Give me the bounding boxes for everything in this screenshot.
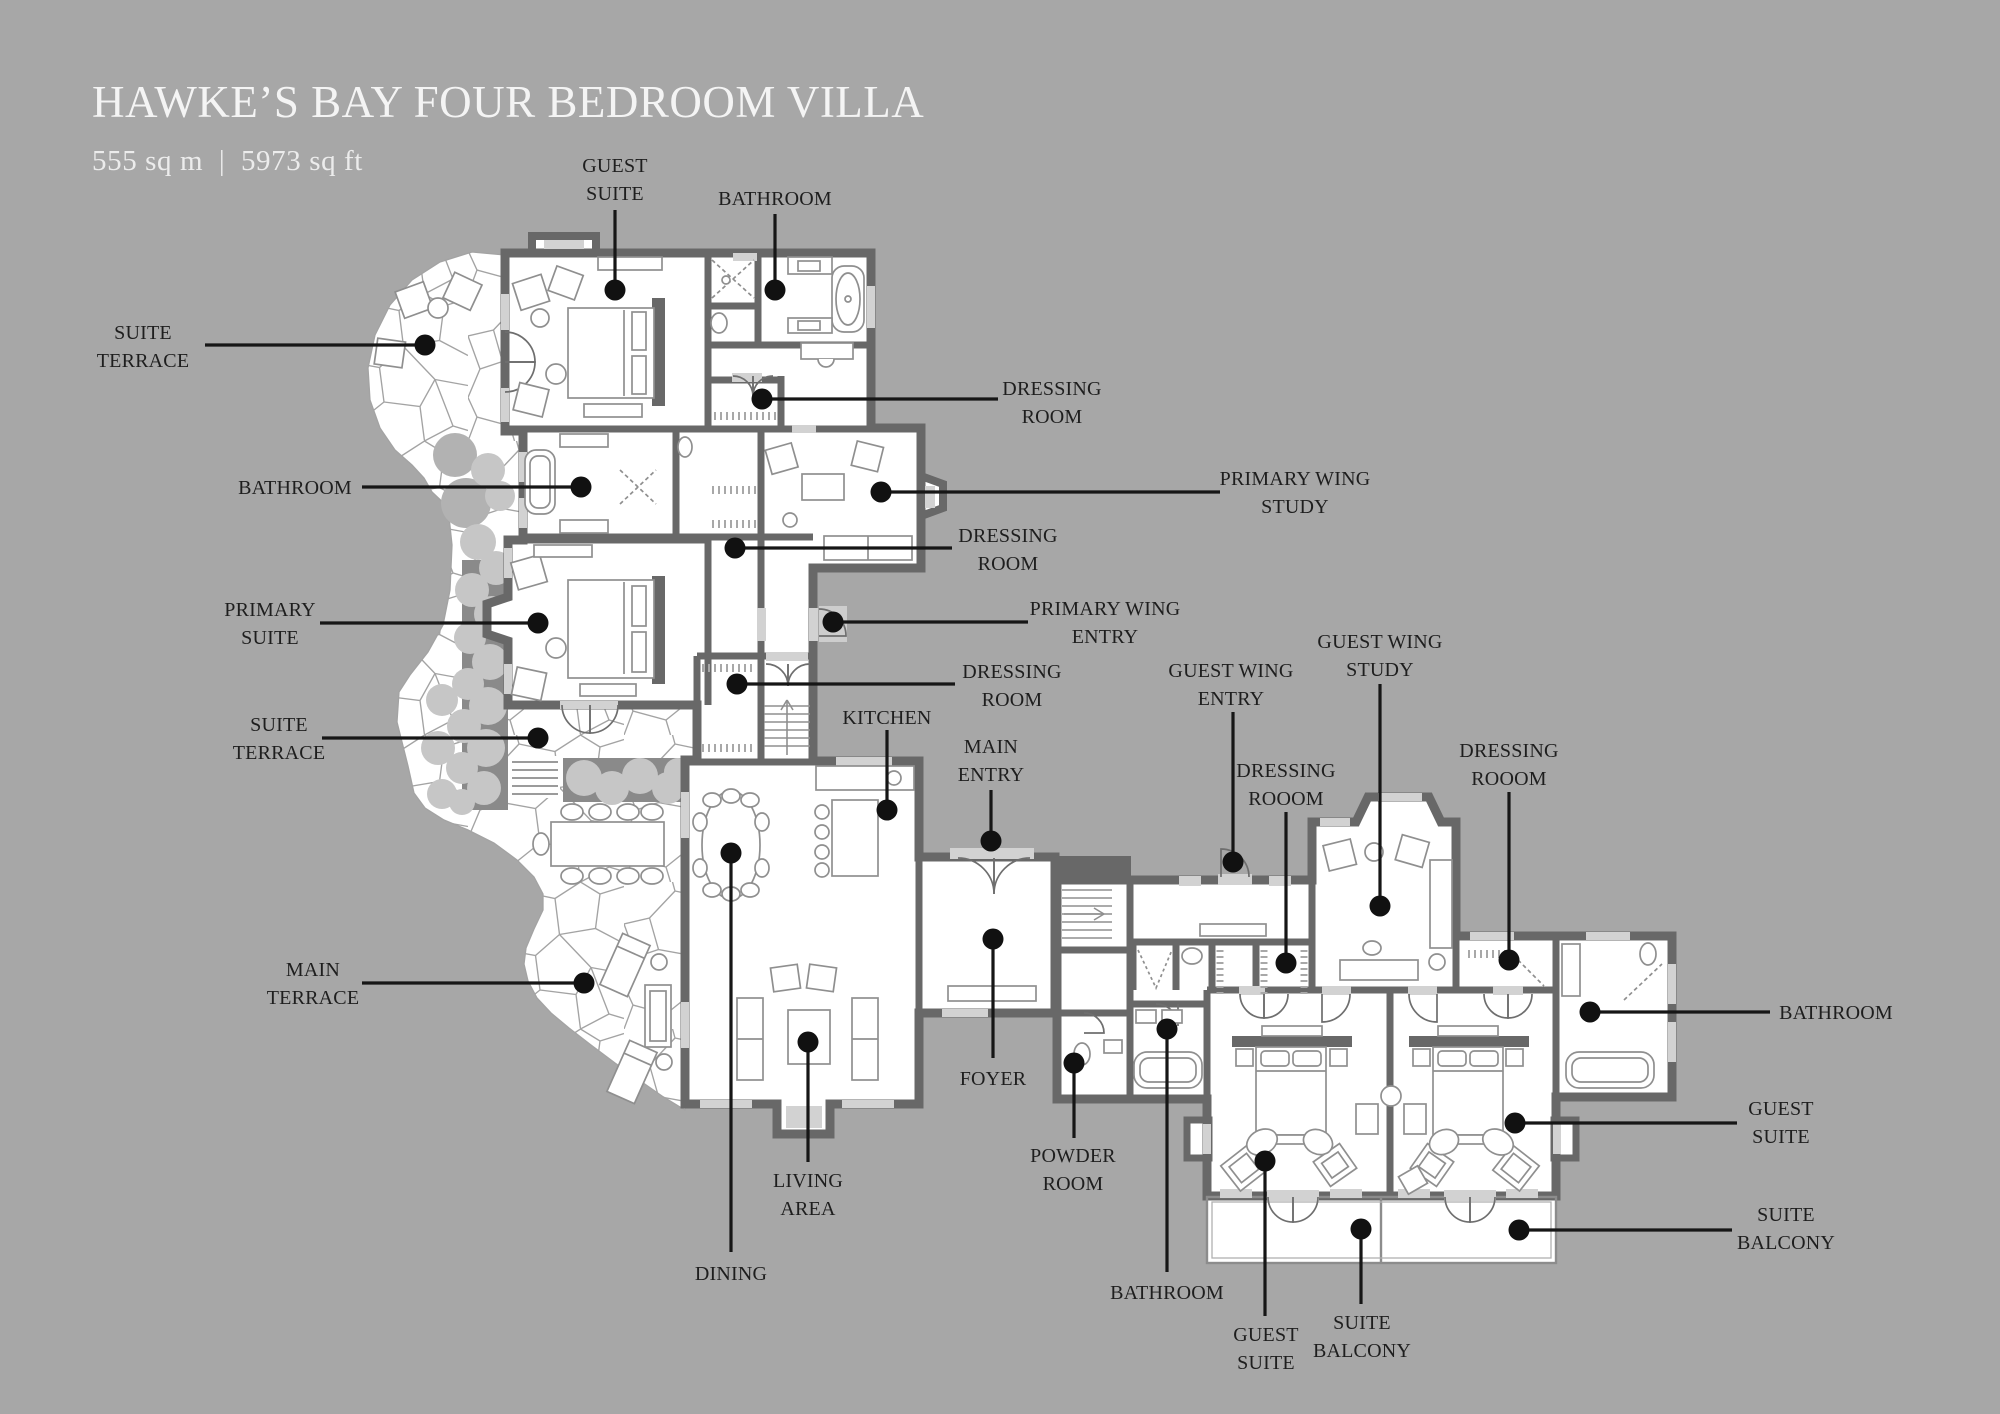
svg-text:ROOOM: ROOOM <box>1248 788 1323 810</box>
svg-text:SUITE: SUITE <box>1333 1312 1391 1334</box>
svg-text:SUITE: SUITE <box>250 714 308 736</box>
svg-text:GUEST: GUEST <box>582 155 647 177</box>
svg-text:DRESSING: DRESSING <box>962 661 1061 683</box>
svg-text:BATHROOM: BATHROOM <box>1110 1282 1224 1304</box>
svg-text:POWDER: POWDER <box>1030 1145 1116 1167</box>
svg-text:SUITE: SUITE <box>114 322 172 344</box>
svg-text:BALCONY: BALCONY <box>1313 1340 1411 1362</box>
svg-text:TERRACE: TERRACE <box>233 742 326 764</box>
svg-text:GUEST: GUEST <box>1748 1098 1813 1120</box>
svg-text:BALCONY: BALCONY <box>1737 1232 1835 1254</box>
svg-text:555 sq m | 5973 sq ft: 555 sq m | 5973 sq ft <box>92 145 363 177</box>
svg-text:BATHROOM: BATHROOM <box>718 188 832 210</box>
svg-text:SUITE: SUITE <box>586 183 644 205</box>
svg-text:ENTRY: ENTRY <box>958 764 1025 786</box>
svg-text:ROOM: ROOM <box>982 689 1043 711</box>
svg-text:HAWKE’S BAY FOUR BEDROOM VILLA: HAWKE’S BAY FOUR BEDROOM VILLA <box>92 77 924 127</box>
svg-text:ENTRY: ENTRY <box>1072 626 1139 648</box>
svg-text:BATHROOM: BATHROOM <box>238 477 352 499</box>
svg-text:PRIMARY WING: PRIMARY WING <box>1220 468 1371 490</box>
svg-text:ROOM: ROOM <box>1043 1173 1104 1195</box>
svg-text:LIVING: LIVING <box>773 1170 843 1192</box>
svg-text:DRESSING: DRESSING <box>1459 740 1558 762</box>
svg-text:MAIN: MAIN <box>964 736 1018 758</box>
svg-text:KITCHEN: KITCHEN <box>842 707 931 729</box>
svg-text:GUEST: GUEST <box>1233 1324 1298 1346</box>
svg-text:AREA: AREA <box>780 1198 836 1220</box>
svg-text:ROOM: ROOM <box>1022 406 1083 428</box>
svg-text:STUDY: STUDY <box>1346 659 1414 681</box>
svg-text:PRIMARY: PRIMARY <box>224 599 315 621</box>
svg-text:ROOOM: ROOOM <box>1471 768 1546 790</box>
svg-text:GUEST WING: GUEST WING <box>1317 631 1442 653</box>
svg-text:DRESSING: DRESSING <box>1002 378 1101 400</box>
svg-text:DINING: DINING <box>695 1263 767 1285</box>
svg-text:MAIN: MAIN <box>286 959 340 981</box>
svg-text:DRESSING: DRESSING <box>1236 760 1335 782</box>
svg-text:SUITE: SUITE <box>241 627 299 649</box>
svg-text:FOYER: FOYER <box>960 1068 1027 1090</box>
svg-text:TERRACE: TERRACE <box>97 350 190 372</box>
svg-text:DRESSING: DRESSING <box>958 525 1057 547</box>
svg-text:PRIMARY WING: PRIMARY WING <box>1030 598 1181 620</box>
svg-text:SUITE: SUITE <box>1237 1352 1295 1374</box>
svg-text:GUEST WING: GUEST WING <box>1168 660 1293 682</box>
svg-text:SUITE: SUITE <box>1752 1126 1810 1148</box>
svg-text:BATHROOM: BATHROOM <box>1779 1002 1893 1024</box>
svg-text:STUDY: STUDY <box>1261 496 1329 518</box>
svg-text:SUITE: SUITE <box>1757 1204 1815 1226</box>
svg-text:ROOM: ROOM <box>978 553 1039 575</box>
svg-text:ENTRY: ENTRY <box>1198 688 1265 710</box>
svg-text:TERRACE: TERRACE <box>267 987 360 1009</box>
